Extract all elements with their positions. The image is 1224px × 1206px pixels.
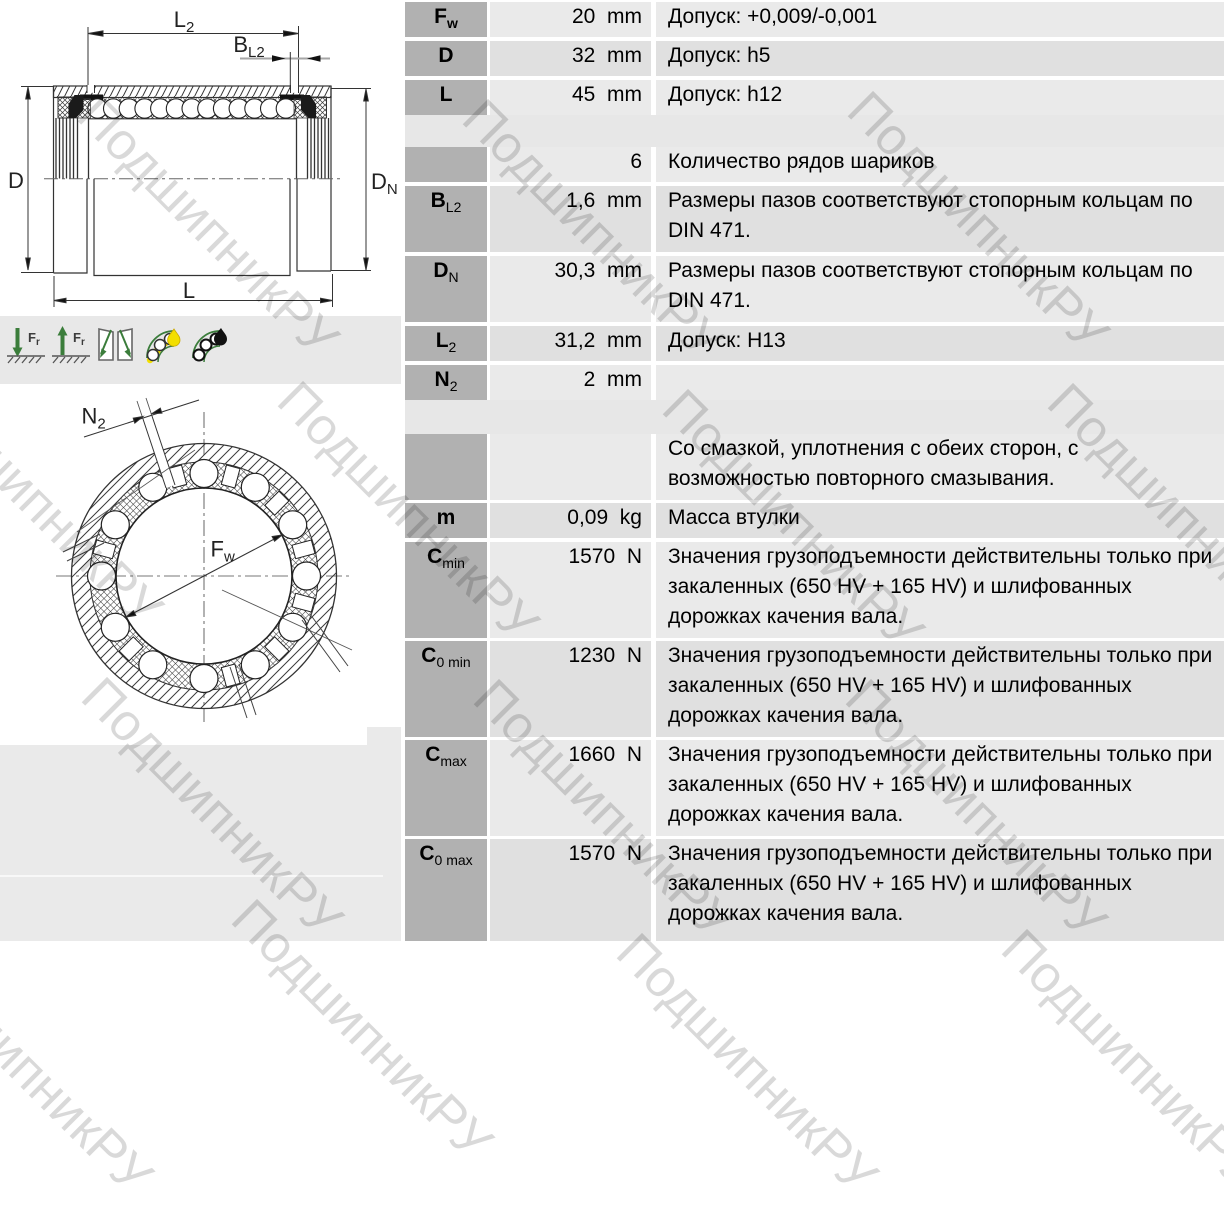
svg-text:L: L xyxy=(183,278,195,303)
svg-text:Fr: Fr xyxy=(73,330,85,348)
svg-text:D: D xyxy=(8,168,24,193)
svg-text:Fw: Fw xyxy=(211,537,235,566)
svg-text:Fr: Fr xyxy=(28,330,40,348)
svg-text:N2: N2 xyxy=(82,404,106,433)
svg-text:DN: DN xyxy=(371,169,398,198)
svg-text:BL2: BL2 xyxy=(233,32,264,61)
svg-text:L2: L2 xyxy=(174,7,195,36)
